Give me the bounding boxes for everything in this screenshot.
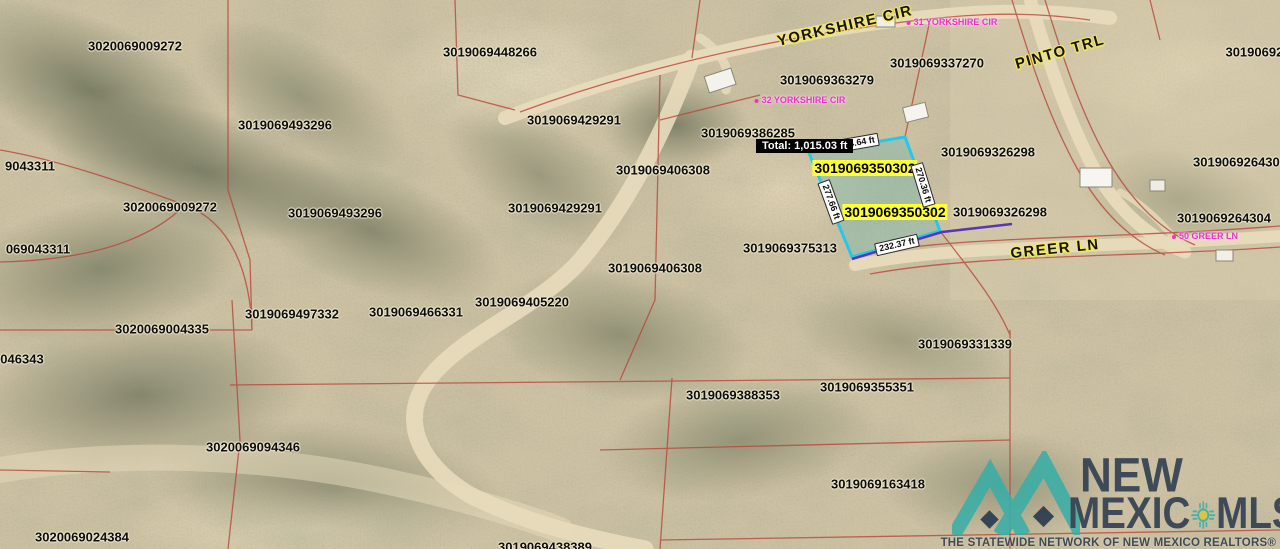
logo-word-mls: MLS — [1216, 493, 1280, 533]
logo-word-mexic: MEXIC — [1068, 493, 1190, 533]
map-canvas[interactable]: 3020069009272301906944826630190693632793… — [0, 0, 1280, 549]
mountains-icon — [952, 451, 1080, 535]
building — [876, 16, 895, 27]
logo-text: NEW MEXIC MLS — [1068, 461, 1280, 533]
total-perimeter-label: Total: 1,015.03 ft — [756, 139, 853, 153]
mls-logo: NEW MEXIC MLS THE STATEWIDE NETWORK OF N… — [950, 444, 1280, 549]
building — [1080, 168, 1112, 187]
building — [1216, 250, 1233, 261]
logo-tagline: THE STATEWIDE NETWORK OF NEW MEXICO REAL… — [941, 537, 1276, 549]
building — [1150, 180, 1165, 191]
zia-sun-icon — [1191, 502, 1215, 529]
